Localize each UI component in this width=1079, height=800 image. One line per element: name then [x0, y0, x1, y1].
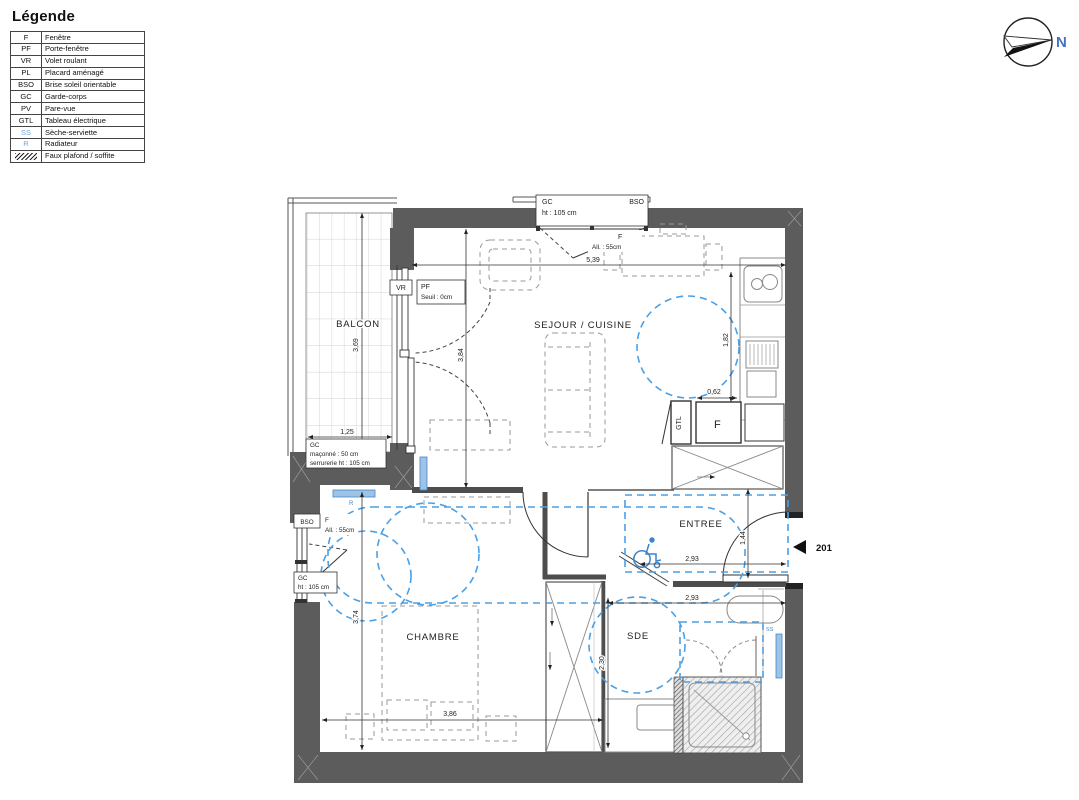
- vr-label: VR: [396, 285, 406, 292]
- towel-dryer-label: SS: [766, 627, 774, 633]
- dim-384: 3,84: [458, 348, 465, 362]
- chambre-door: [523, 492, 588, 557]
- dim-144: 1,44: [740, 531, 747, 545]
- bed: [346, 606, 516, 741]
- entry-door: [723, 512, 789, 582]
- shower: [674, 677, 761, 753]
- top-gc-height: ht : 105 cm: [542, 210, 577, 217]
- balcon-gc-serrurerie: serrurerie ht : 105 cm: [310, 460, 370, 467]
- balcon-gc: GC: [310, 442, 320, 449]
- sde-fixtures: [605, 589, 784, 753]
- north-label: N: [1056, 34, 1067, 51]
- gtl-label: GTL: [676, 416, 683, 430]
- balcon-gc-maconne: maçonné : 50 cm: [310, 451, 358, 458]
- towel-dryer-bar: [776, 634, 782, 678]
- drain-icon: [743, 733, 749, 739]
- left-f-label: F: [325, 517, 329, 524]
- room-label-sejour: SEJOUR / CUISINE: [534, 320, 632, 331]
- north-compass: N: [1004, 18, 1067, 66]
- top-f-label: F: [618, 234, 622, 241]
- dim-374: 3,74: [353, 610, 360, 624]
- dim-062: 0,62: [707, 389, 721, 396]
- sink-icon: [747, 371, 776, 397]
- dim-125: 1,25: [340, 429, 354, 436]
- cooktop-icon: [744, 266, 782, 302]
- floor-plan-page: Légende FFenêtre PFPorte-fenêtre VRVolet…: [0, 0, 1079, 800]
- console-table: [430, 420, 510, 450]
- left-gc-height: ht : 105 cm: [298, 584, 329, 591]
- pf-seuil: Seuil : 0cm: [421, 294, 452, 301]
- room-label-chambre: CHAMBRE: [406, 632, 459, 643]
- accessibility-circle-chambre: [377, 503, 479, 605]
- dim-293b: 2,93: [685, 595, 699, 602]
- dim-182: 1,82: [723, 333, 730, 347]
- kitchen-unit-box: [745, 404, 784, 441]
- left-f-allege: All. : 55cm: [325, 527, 354, 534]
- room-label-balcon: BALCON: [336, 319, 380, 330]
- dim-230: 2,30: [599, 656, 606, 670]
- kitchen: [662, 258, 785, 444]
- dim-386: 3,86: [443, 711, 457, 718]
- pf-label: PF: [421, 284, 430, 291]
- wardrobe-pl: [546, 582, 602, 752]
- radiator-label: R: [349, 501, 354, 507]
- sde-door: [619, 552, 669, 586]
- desk: [424, 497, 510, 523]
- room-label-entree: ENTREE: [679, 519, 722, 530]
- top-bso-label: BSO: [629, 199, 644, 206]
- room-label-sde: SDE: [627, 631, 649, 642]
- unit-marker: 201: [793, 540, 833, 554]
- dim-293a: 2,93: [685, 556, 699, 563]
- floor-plan-svg: R SS 5,39 3,69: [0, 0, 1079, 800]
- vanity-counter: [605, 699, 684, 752]
- left-gc-label: GC: [298, 575, 308, 582]
- left-bso-label: BSO: [300, 519, 313, 526]
- sofa: [545, 333, 605, 447]
- balcony-tiles: [306, 213, 392, 452]
- dim-539: 5,39: [586, 257, 600, 264]
- radiator-chambre: [333, 490, 375, 497]
- dim-369: 3,69: [353, 338, 360, 352]
- radiator-sejour: [420, 457, 427, 490]
- sde-zone: [680, 622, 763, 682]
- towel-dryer: SS: [766, 627, 782, 678]
- drainer-icon: [746, 341, 778, 368]
- entree-storage: [672, 446, 783, 489]
- unit-arrow-icon: [793, 540, 806, 554]
- unit-number: 201: [816, 543, 833, 554]
- top-gc-label: GC: [542, 199, 553, 206]
- kitchen-f-label: F: [714, 419, 721, 431]
- top-f-allege: All. : 55cm: [592, 244, 621, 251]
- wc-icon: [727, 596, 783, 623]
